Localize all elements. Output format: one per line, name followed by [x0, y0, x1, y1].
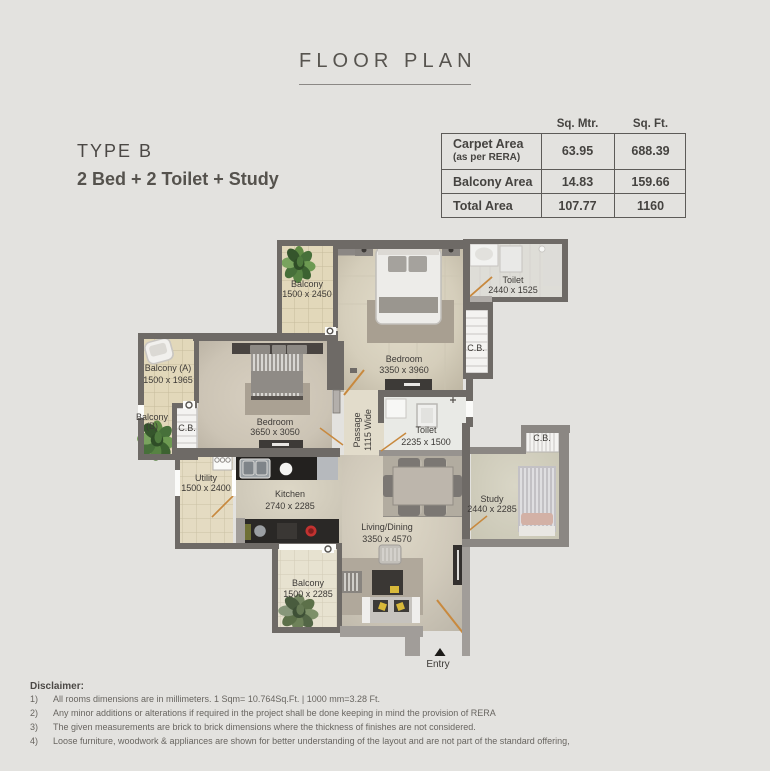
- svg-text:2235 x 1500: 2235 x 1500: [401, 437, 451, 447]
- svg-text:C.B.: C.B.: [178, 423, 196, 433]
- svg-text:Living/Dining: Living/Dining: [361, 522, 413, 532]
- svg-text:1115 Wide: 1115 Wide: [363, 409, 373, 451]
- svg-text:2440 x 2285: 2440 x 2285: [467, 504, 517, 514]
- svg-text:1500 x 1965: 1500 x 1965: [143, 375, 193, 385]
- svg-text:1500 x 2400: 1500 x 2400: [181, 483, 231, 493]
- svg-text:C.B.: C.B.: [467, 343, 485, 353]
- svg-text:1500 x 2285: 1500 x 2285: [283, 589, 333, 599]
- svg-text:Bedroom: Bedroom: [386, 354, 423, 364]
- svg-text:2440 x 1525: 2440 x 1525: [488, 285, 538, 295]
- svg-text:Passage: Passage: [352, 412, 362, 447]
- svg-text:Balcony: Balcony: [291, 279, 324, 289]
- svg-text:2740 x 2285: 2740 x 2285: [265, 501, 315, 511]
- svg-text:Toilet: Toilet: [415, 425, 437, 435]
- svg-text:3650 x 3050: 3650 x 3050: [250, 427, 300, 437]
- svg-text:Utility: Utility: [195, 473, 217, 483]
- svg-text:1500 x 2450: 1500 x 2450: [282, 289, 332, 299]
- svg-text:Toilet: Toilet: [502, 275, 524, 285]
- svg-text:C.B.: C.B.: [533, 433, 551, 443]
- svg-text:3350 x 3960: 3350 x 3960: [379, 365, 429, 375]
- svg-text:Entry: Entry: [426, 659, 449, 670]
- svg-text:Balcony (A): Balcony (A): [145, 363, 192, 373]
- svg-text:(B): (B): [146, 421, 158, 431]
- svg-text:Balcony: Balcony: [292, 578, 325, 588]
- svg-text:3350 x 4570: 3350 x 4570: [362, 534, 412, 544]
- svg-text:Kitchen: Kitchen: [275, 489, 305, 499]
- svg-text:Study: Study: [480, 494, 504, 504]
- svg-text:Bedroom: Bedroom: [257, 417, 294, 427]
